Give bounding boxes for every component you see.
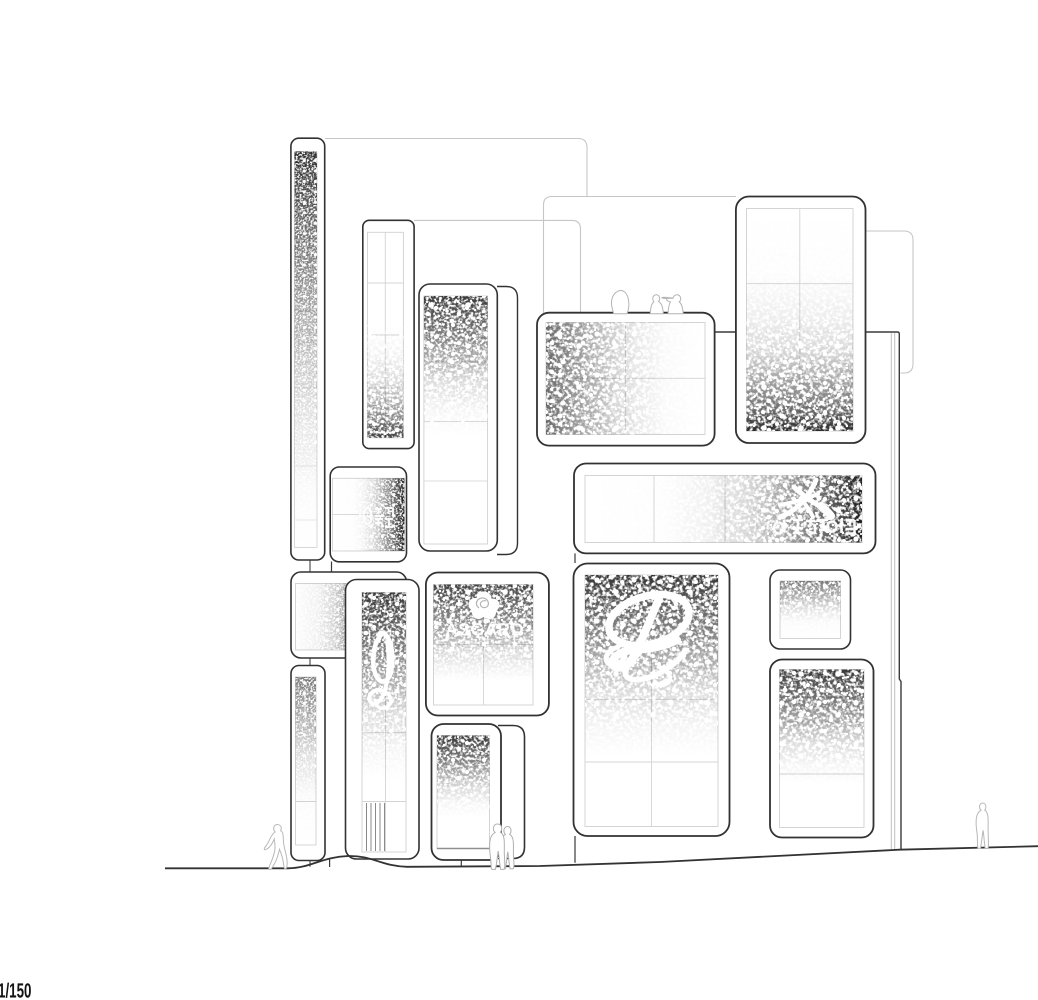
svg-text:ASGARD: ASGARD (446, 621, 525, 639)
svg-text:1/150: 1/150 (0, 980, 31, 1000)
svg-text:NINE WORLDS: NINE WORLDS (447, 647, 516, 657)
